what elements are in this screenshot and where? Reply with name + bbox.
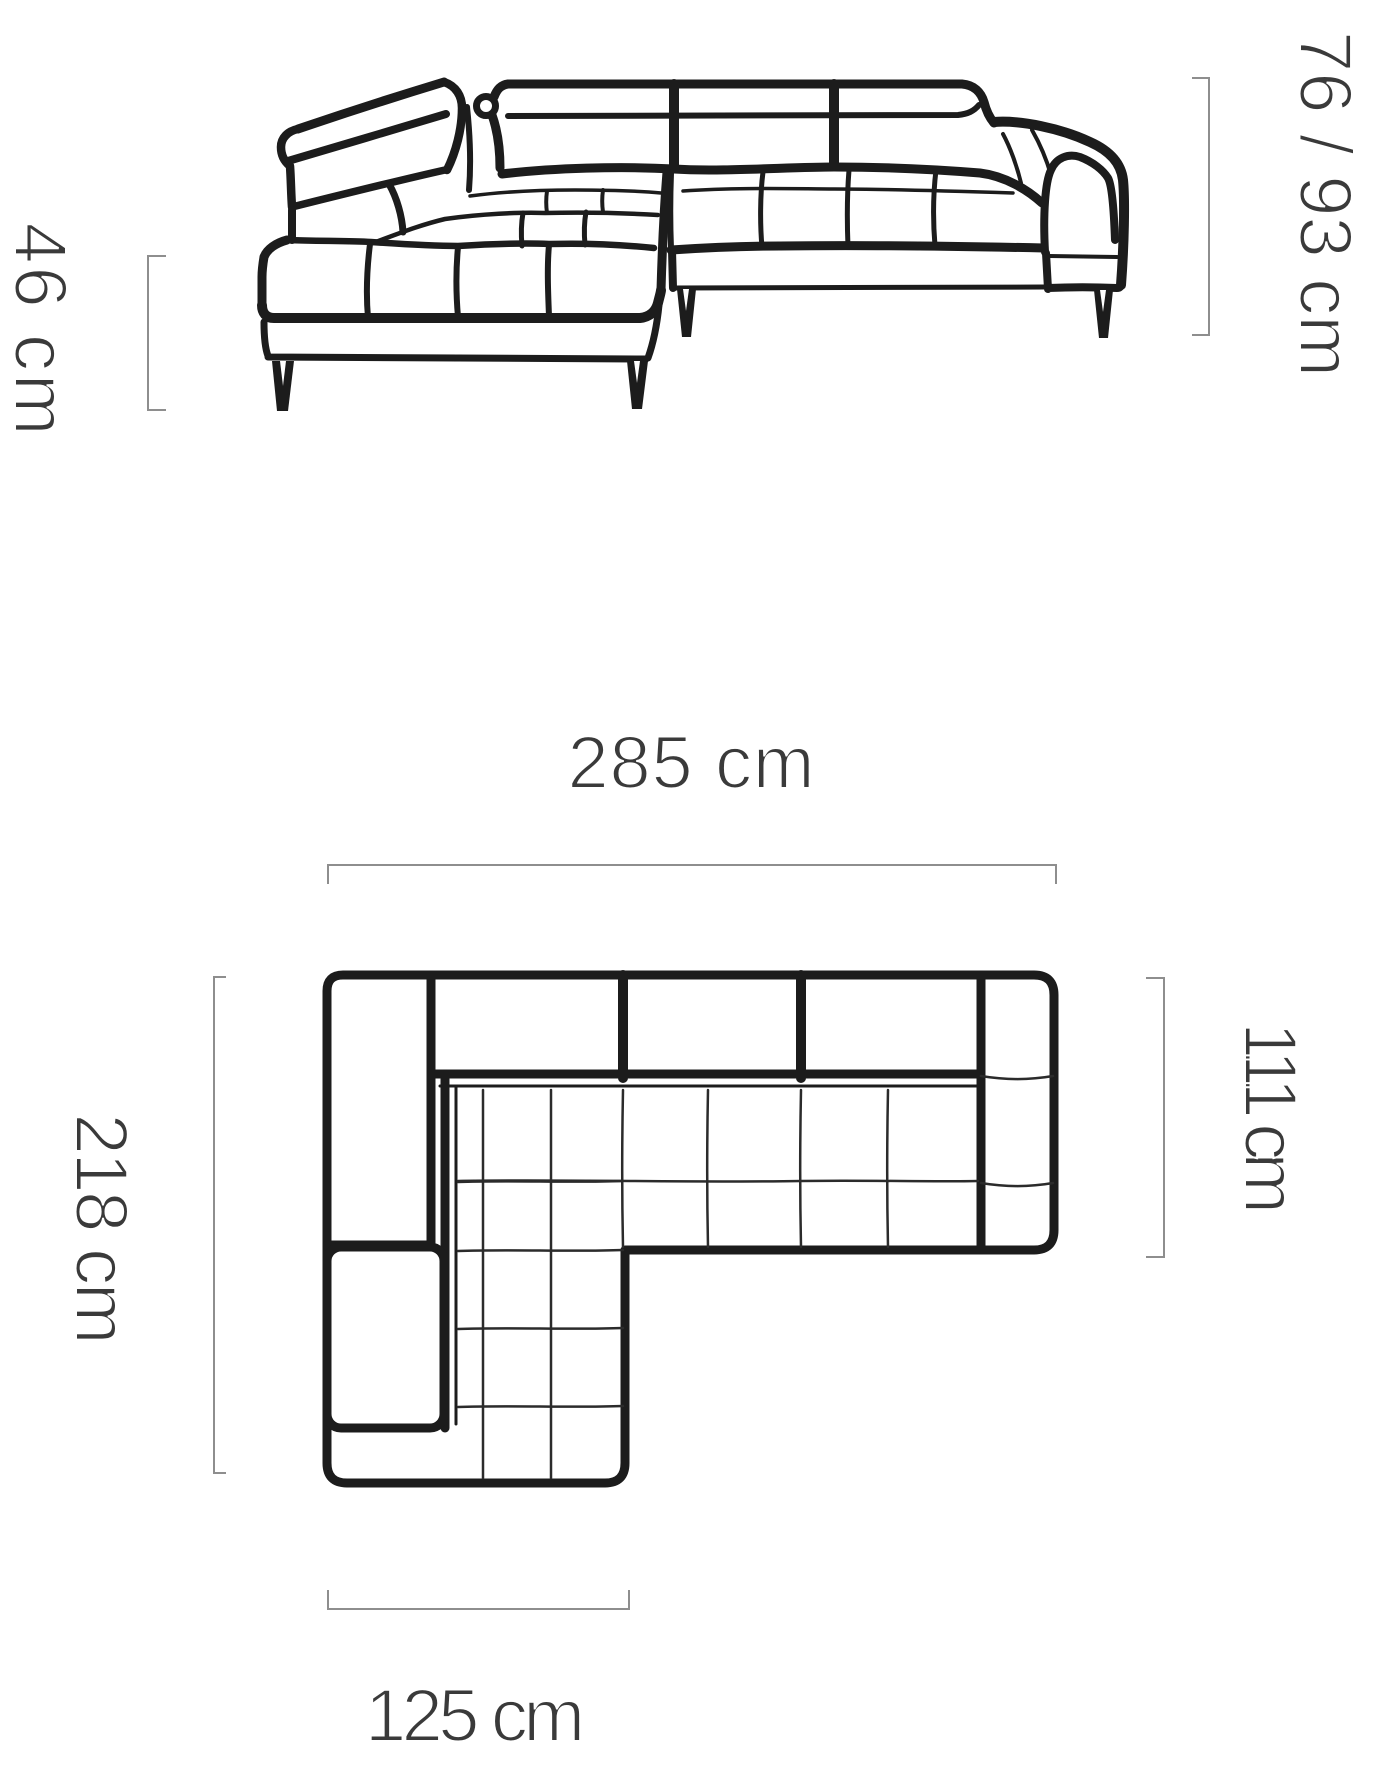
svg-text:76 / 93 cm: 76 / 93 cm	[1284, 31, 1367, 379]
svg-text:125 cm: 125 cm	[365, 1674, 587, 1757]
svg-text:285 cm: 285 cm	[568, 721, 817, 804]
svg-text:46 cm: 46 cm	[0, 223, 82, 438]
svg-text:218 cm: 218 cm	[60, 1114, 143, 1347]
svg-text:111 cm: 111 cm	[1229, 1022, 1312, 1216]
